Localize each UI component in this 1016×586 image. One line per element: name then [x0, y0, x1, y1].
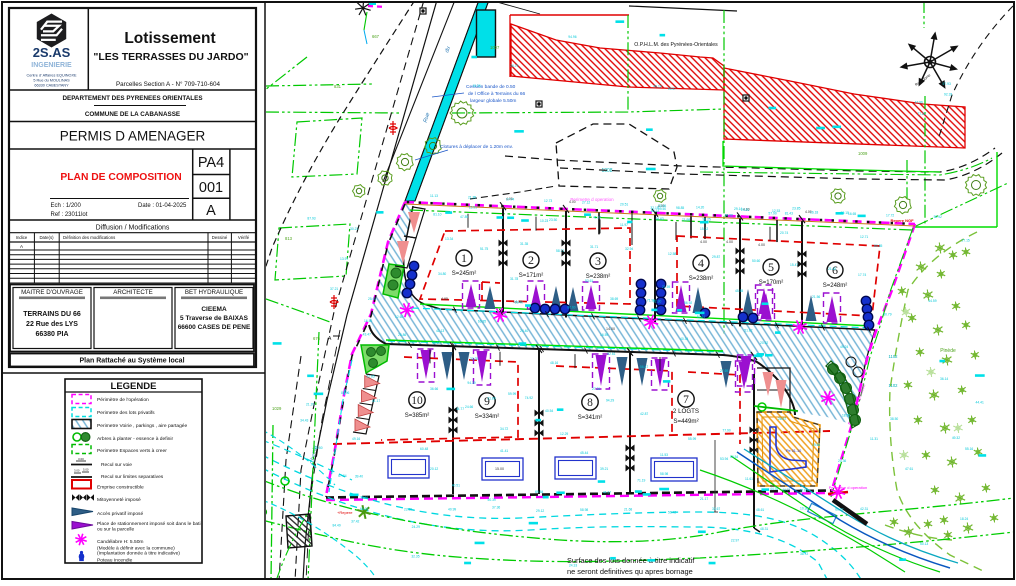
svg-text:44.37: 44.37 — [603, 491, 611, 495]
svg-text:49.16: 49.16 — [352, 437, 360, 441]
svg-text:17.74: 17.74 — [506, 197, 514, 201]
svg-text:Surface des lots donnée à titr: Surface des lots donnée à titre indicati… — [567, 556, 695, 565]
svg-text:39.40: 39.40 — [355, 475, 363, 479]
svg-text:60.55: 60.55 — [874, 244, 882, 248]
svg-text:92.61: 92.61 — [607, 352, 615, 356]
svg-text:81.10: 81.10 — [433, 213, 441, 217]
svg-text:3: 3 — [595, 254, 601, 268]
svg-text:36.66: 36.66 — [430, 387, 438, 391]
svg-text:22 Rue des LYS: 22 Rue des LYS — [26, 321, 78, 328]
svg-text:15.50: 15.50 — [314, 446, 322, 450]
svg-text:BET HYDRAULIQUE: BET HYDRAULIQUE — [185, 289, 243, 296]
svg-text:15.12: 15.12 — [700, 227, 708, 231]
svg-text:52.92: 52.92 — [934, 215, 942, 219]
svg-text:86.60: 86.60 — [567, 305, 575, 309]
svg-text:38.69: 38.69 — [610, 297, 618, 301]
svg-text:36.14: 36.14 — [940, 377, 948, 381]
svg-text:5.00: 5.00 — [83, 468, 89, 472]
svg-text:94.96: 94.96 — [568, 35, 576, 39]
svg-text:26.57: 26.57 — [778, 417, 786, 421]
svg-text:24.40: 24.40 — [520, 329, 528, 333]
svg-text:21.89: 21.89 — [487, 397, 495, 401]
svg-text:58.71: 58.71 — [556, 249, 564, 253]
svg-text:30.21: 30.21 — [350, 227, 358, 231]
svg-text:PERMIS D AMENAGER: PERMIS D AMENAGER — [60, 129, 206, 144]
svg-text:40.34: 40.34 — [680, 337, 688, 341]
svg-text:20.12: 20.12 — [430, 467, 438, 471]
svg-text:44.59: 44.59 — [928, 299, 936, 303]
svg-text:60.48: 60.48 — [420, 447, 428, 451]
svg-text:largeur globale 5.50m: largeur globale 5.50m — [470, 98, 516, 104]
svg-text:+Repere: +Repere — [337, 510, 353, 515]
svg-text:Diffusion / Modifications: Diffusion / Modifications — [96, 225, 170, 232]
svg-text:66600 CASES DE PENE: 66600 CASES DE PENE — [178, 324, 251, 331]
svg-text:41.37: 41.37 — [593, 215, 601, 219]
svg-text:66.85: 66.85 — [478, 319, 486, 323]
svg-text:37.42: 37.42 — [351, 520, 359, 524]
svg-text:24.66: 24.66 — [465, 405, 473, 409]
svg-text:16.50: 16.50 — [364, 319, 372, 323]
svg-text:12.73: 12.73 — [544, 199, 552, 203]
svg-text:12.29: 12.29 — [560, 432, 568, 436]
svg-text:40.54: 40.54 — [545, 409, 553, 413]
svg-text:32.25: 32.25 — [470, 357, 478, 361]
svg-text:5 Traverse de BAIXAS: 5 Traverse de BAIXAS — [180, 315, 249, 322]
svg-text:Candélabre H: 5.50m: Candélabre H: 5.50m — [97, 539, 144, 545]
svg-text:82.84: 82.84 — [697, 315, 705, 319]
svg-text:25.86: 25.86 — [398, 333, 406, 337]
svg-text:52.65: 52.65 — [366, 375, 374, 379]
svg-text:TERRAINS DU 66: TERRAINS DU 66 — [23, 311, 81, 318]
svg-text:51.75: 51.75 — [480, 247, 488, 251]
svg-text:27.15: 27.15 — [962, 238, 970, 242]
svg-text:94.29: 94.29 — [606, 399, 614, 403]
svg-text:13.34: 13.34 — [445, 237, 453, 241]
svg-text:45.55: 45.55 — [735, 289, 743, 293]
svg-text:21.62: 21.62 — [828, 267, 836, 271]
svg-text:26.79: 26.79 — [510, 64, 518, 68]
svg-text:O.P.H.L.M. des Pyrénées-Orient: O.P.H.L.M. des Pyrénées-Orientales — [634, 42, 718, 48]
svg-text:45.19: 45.19 — [653, 85, 661, 89]
svg-text:14.00: 14.00 — [606, 327, 615, 331]
svg-text:56.47: 56.47 — [640, 365, 648, 369]
svg-text:ARCHITECTE: ARCHITECTE — [113, 289, 153, 296]
svg-text:20.74: 20.74 — [780, 231, 788, 235]
svg-text:74.92: 74.92 — [525, 396, 533, 400]
svg-text:94.39: 94.39 — [467, 381, 475, 385]
svg-text:12.71: 12.71 — [860, 235, 868, 239]
svg-text:"LES TERRASSES DU JARDO": "LES TERRASSES DU JARDO" — [93, 51, 248, 63]
svg-text:53.94: 53.94 — [720, 457, 728, 461]
svg-text:3.00: 3.00 — [78, 457, 84, 461]
svg-text:Indice: Indice — [16, 235, 28, 240]
svg-text:21.17: 21.17 — [700, 497, 708, 501]
svg-text:67.84: 67.84 — [338, 474, 346, 478]
svg-text:35.28: 35.28 — [360, 496, 368, 500]
svg-text:10.36: 10.36 — [800, 506, 808, 510]
svg-text:21.56: 21.56 — [812, 295, 820, 299]
svg-text:Emprise constructible: Emprise constructible — [97, 484, 144, 490]
svg-text:23.50: 23.50 — [549, 218, 557, 222]
svg-text:Centre d' Affaires EQUINOXE: Centre d' Affaires EQUINOXE — [26, 74, 77, 78]
svg-text:Ech : 1/200: Ech : 1/200 — [51, 203, 82, 209]
svg-text:48.16: 48.16 — [550, 361, 558, 365]
svg-text:Poteau Incendie: Poteau Incendie — [97, 557, 133, 563]
svg-text:20.52: 20.52 — [760, 341, 768, 345]
svg-text:11.53: 11.53 — [660, 453, 668, 457]
svg-text:1102: 1102 — [888, 383, 898, 388]
svg-text:CIEEMA: CIEEMA — [201, 306, 227, 313]
svg-text:87.93: 87.93 — [307, 217, 315, 221]
svg-text:Définition des modifications: Définition des modifications — [63, 235, 115, 240]
svg-text:47.89: 47.89 — [460, 215, 468, 219]
svg-text:Ref : 23011lot: Ref : 23011lot — [51, 212, 88, 218]
svg-text:Accès privatif imposé: Accès privatif imposé — [97, 511, 143, 517]
svg-text:15.47: 15.47 — [790, 263, 798, 267]
svg-text:42.31: 42.31 — [860, 507, 868, 511]
svg-text:66380 PIA: 66380 PIA — [35, 331, 68, 338]
svg-text:25.61: 25.61 — [368, 297, 376, 301]
svg-text:43.47: 43.47 — [363, 332, 371, 336]
svg-text:50.13: 50.13 — [920, 542, 928, 546]
svg-text:21.68: 21.68 — [624, 507, 632, 511]
svg-text:21.20: 21.20 — [306, 402, 314, 406]
svg-text:27.31: 27.31 — [592, 387, 600, 391]
svg-text:29.87: 29.87 — [712, 255, 720, 259]
svg-text:1029: 1029 — [272, 406, 282, 411]
svg-text:11.31: 11.31 — [870, 437, 878, 441]
svg-text:4.00: 4.00 — [758, 243, 765, 247]
svg-text:38.72: 38.72 — [800, 552, 808, 556]
svg-text:2S.AS: 2S.AS — [33, 45, 71, 60]
svg-text:21.89: 21.89 — [468, 196, 476, 200]
svg-text:98.25: 98.25 — [703, 217, 711, 221]
svg-text:40.51: 40.51 — [452, 484, 460, 488]
svg-text:64.38: 64.38 — [725, 213, 733, 217]
svg-text:23.81: 23.81 — [741, 208, 749, 212]
svg-text:13.97: 13.97 — [340, 257, 348, 261]
svg-text:Pinède: Pinède — [940, 348, 956, 354]
svg-text:16.65: 16.65 — [848, 212, 856, 216]
svg-text:A: A — [20, 244, 23, 249]
svg-text:PA4: PA4 — [198, 155, 224, 171]
svg-text:3.00: 3.00 — [74, 469, 80, 473]
svg-text:28.63: 28.63 — [800, 488, 808, 492]
svg-text:INGENIERIE: INGENIERIE — [31, 62, 72, 69]
svg-text:50.39: 50.39 — [488, 498, 496, 502]
svg-text:8: 8 — [587, 397, 593, 409]
svg-text:831: 831 — [334, 84, 342, 89]
svg-text:DEPARTEMENT DES PYRENEES ORIEN: DEPARTEMENT DES PYRENEES ORIENTALES — [62, 95, 202, 102]
svg-text:45.44: 45.44 — [580, 451, 588, 455]
svg-text:53.61: 53.61 — [585, 279, 593, 283]
svg-text:48.31: 48.31 — [760, 527, 768, 531]
svg-text:24.29: 24.29 — [412, 525, 420, 529]
svg-text:34.43: 34.43 — [300, 418, 308, 422]
svg-text:Vérifé: Vérifé — [238, 235, 250, 240]
svg-text:22.30: 22.30 — [404, 507, 412, 511]
svg-text:1: 1 — [461, 251, 467, 265]
svg-text:19.40: 19.40 — [515, 300, 523, 304]
svg-text:4.95: 4.95 — [441, 297, 448, 301]
svg-text:21.59: 21.59 — [662, 285, 670, 289]
svg-text:51.82: 51.82 — [744, 329, 752, 333]
svg-text:5: 5 — [768, 260, 774, 274]
svg-text:99.57: 99.57 — [668, 87, 676, 91]
svg-text:4: 4 — [698, 256, 704, 270]
svg-text:60.15: 60.15 — [360, 507, 368, 511]
svg-text:56.92: 56.92 — [684, 301, 692, 305]
svg-text:1008: 1008 — [601, 168, 612, 174]
svg-text:12.60: 12.60 — [395, 315, 403, 319]
svg-text:29.14: 29.14 — [734, 207, 742, 211]
svg-text:58.98: 58.98 — [580, 508, 588, 512]
svg-text:50.54: 50.54 — [730, 455, 738, 459]
svg-text:4.00: 4.00 — [700, 240, 707, 244]
svg-text:001: 001 — [199, 180, 223, 196]
svg-text:16.18: 16.18 — [810, 210, 818, 214]
svg-text:1007: 1007 — [490, 45, 500, 50]
svg-text:10.23: 10.23 — [540, 219, 548, 223]
svg-text:S=449m²: S=449m² — [673, 418, 698, 425]
svg-text:18.55: 18.55 — [842, 413, 850, 417]
svg-text:667: 667 — [372, 34, 380, 39]
svg-text:37.36: 37.36 — [492, 505, 500, 509]
svg-text:84.49: 84.49 — [332, 523, 340, 527]
svg-text:S=171m²: S=171m² — [519, 273, 544, 279]
svg-text:Plan Rattaché au Système local: Plan Rattaché au Système local — [79, 358, 184, 365]
svg-text:34.72: 34.72 — [500, 427, 508, 431]
svg-text:Date : 01-04-2025: Date : 01-04-2025 — [138, 203, 187, 209]
svg-text:15.00: 15.00 — [495, 467, 504, 471]
svg-text:Mitoyenneté imposé: Mitoyenneté imposé — [97, 497, 141, 503]
svg-text:ne seront definitives qu apres: ne seront definitives qu apres bornage — [567, 567, 693, 576]
svg-text:18.24: 18.24 — [960, 517, 968, 521]
svg-text:44.34: 44.34 — [770, 487, 778, 491]
svg-text:Perimetre Voirie , parkings ,: Perimetre Voirie , parkings , aire parta… — [97, 423, 188, 429]
svg-text:80.79: 80.79 — [883, 312, 891, 316]
svg-text:48.61: 48.61 — [756, 508, 764, 512]
svg-text:12.58: 12.58 — [668, 252, 676, 256]
svg-text:1009: 1009 — [858, 151, 868, 156]
svg-text:COMMUNE DE LA CABANASSE: COMMUNE DE LA CABANASSE — [85, 111, 180, 118]
svg-text:29.12: 29.12 — [536, 509, 544, 513]
svg-text:19.68: 19.68 — [812, 443, 820, 447]
svg-text:S=385m²: S=385m² — [405, 413, 430, 419]
svg-text:56.42: 56.42 — [668, 510, 676, 514]
svg-text:47.96: 47.96 — [915, 100, 923, 104]
svg-text:69.84: 69.84 — [535, 490, 543, 494]
svg-text:1102: 1102 — [888, 354, 898, 359]
svg-text:55.16: 55.16 — [965, 447, 973, 451]
svg-text:71.99: 71.99 — [647, 299, 655, 303]
svg-text:89.96: 89.96 — [341, 391, 349, 395]
svg-text:Clotures à déplacer de 1.20m e: Clotures à déplacer de 1.20m env. — [440, 144, 513, 150]
svg-text:57.93: 57.93 — [943, 82, 951, 86]
svg-text:92.33: 92.33 — [944, 93, 952, 97]
svg-text:5 Rue du MOULINAS: 5 Rue du MOULINAS — [33, 79, 70, 83]
svg-text:98.63: 98.63 — [656, 217, 664, 221]
svg-text:23.85: 23.85 — [792, 206, 800, 210]
svg-text:32.94: 32.94 — [625, 247, 633, 251]
svg-text:Recul sur limites separatives: Recul sur limites separatives — [101, 474, 164, 480]
svg-text:39.21: 39.21 — [600, 467, 608, 471]
svg-text:77.90: 77.90 — [722, 428, 730, 432]
svg-text:50.60: 50.60 — [752, 259, 760, 263]
svg-text:20.54: 20.54 — [658, 204, 666, 208]
svg-text:Perimetre d operation: Perimetre d operation — [570, 197, 614, 202]
svg-text:47.61: 47.61 — [905, 467, 913, 471]
svg-text:S=341m²: S=341m² — [578, 415, 603, 421]
svg-text:55.99: 55.99 — [688, 437, 696, 441]
svg-text:11.97: 11.97 — [620, 223, 628, 227]
svg-text:32.35: 32.35 — [411, 555, 419, 559]
svg-text:41.13: 41.13 — [436, 329, 444, 333]
svg-text:S=334m²: S=334m² — [475, 414, 500, 420]
svg-text:Perimetre Espaces verts à cre: Perimetre Espaces verts à creer — [97, 448, 167, 454]
svg-text:27.69: 27.69 — [720, 369, 728, 373]
svg-text:31.35: 31.35 — [520, 242, 528, 246]
svg-text:Parcelles Section A - N° 709-7: Parcelles Section A - N° 709-710-604 — [116, 80, 221, 88]
svg-text:81.43: 81.43 — [785, 212, 793, 216]
svg-text:11.61: 11.61 — [745, 477, 753, 481]
svg-text:38.50: 38.50 — [890, 417, 898, 421]
svg-text:Pe 01.10: Pe 01.10 — [786, 449, 801, 453]
svg-text:41.41: 41.41 — [500, 449, 508, 453]
svg-text:82.22: 82.22 — [651, 209, 659, 213]
svg-text:2: 2 — [528, 253, 534, 267]
svg-text:Périmètre de l'opération: Périmètre de l'opération — [97, 397, 149, 403]
svg-text:4.00: 4.00 — [569, 200, 576, 204]
svg-text:20.36: 20.36 — [838, 459, 846, 463]
svg-text:7: 7 — [683, 394, 689, 406]
svg-text:19.36: 19.36 — [472, 84, 480, 88]
svg-text:Arbres à planter - essence à d: Arbres à planter - essence à definir — [97, 436, 173, 442]
svg-text:Date(s): Date(s) — [39, 235, 54, 240]
svg-text:58.98: 58.98 — [660, 472, 668, 476]
svg-text:16.59: 16.59 — [600, 333, 608, 337]
svg-text:813: 813 — [285, 236, 293, 241]
svg-text:Lotissement: Lotissement — [124, 30, 215, 47]
svg-text:S=248m²: S=248m² — [823, 283, 848, 289]
svg-text:40.99: 40.99 — [448, 507, 456, 511]
svg-text:20.51: 20.51 — [620, 202, 628, 206]
svg-text:S=245m²: S=245m² — [452, 271, 477, 277]
svg-text:22.97: 22.97 — [731, 538, 739, 542]
svg-text:33.67: 33.67 — [712, 507, 720, 511]
svg-text:MAITRE D'OUVRAGE: MAITRE D'OUVRAGE — [21, 289, 83, 296]
svg-text:34.80: 34.80 — [438, 272, 446, 276]
svg-text:59.99: 59.99 — [508, 392, 516, 396]
svg-text:71.19: 71.19 — [637, 478, 645, 482]
svg-text:Repere NGF: Repere NGF — [890, 218, 914, 223]
svg-text:34.77: 34.77 — [456, 407, 464, 411]
svg-text:27.12: 27.12 — [582, 201, 590, 205]
svg-text:PLAN DE COMPOSITION: PLAN DE COMPOSITION — [60, 172, 181, 183]
svg-text:de l Office à Terrains du 66: de l Office à Terrains du 66 — [468, 91, 525, 97]
svg-text:4.00: 4.00 — [726, 240, 733, 244]
svg-text:Perimetre des lots privatifs: Perimetre des lots privatifs — [97, 410, 155, 416]
svg-text:Place de stationnement imposé: Place de stationnement imposé soit dans … — [97, 521, 201, 527]
svg-text:12.53: 12.53 — [772, 209, 780, 213]
svg-text:44.71: 44.71 — [782, 488, 790, 492]
svg-text:2 LOGTS: 2 LOGTS — [673, 408, 699, 415]
svg-text:676: 676 — [313, 336, 321, 341]
svg-text:49.32: 49.32 — [952, 436, 960, 440]
svg-text:51.17: 51.17 — [372, 399, 380, 403]
svg-text:37.21: 37.21 — [330, 287, 338, 291]
svg-text:77.24: 77.24 — [917, 112, 925, 116]
svg-text:13.51: 13.51 — [469, 205, 477, 209]
svg-text:LEGENDE: LEGENDE — [111, 381, 157, 392]
svg-text:11.13: 11.13 — [430, 194, 438, 198]
svg-text:S=238m²: S=238m² — [689, 276, 714, 282]
svg-text:(Implantation donnée à titre i: (Implantation donnée à titre indicative) — [97, 550, 180, 556]
svg-text:17.74: 17.74 — [858, 273, 866, 277]
svg-text:A: A — [206, 203, 216, 219]
svg-text:71.99: 71.99 — [682, 218, 690, 222]
svg-text:10: 10 — [411, 395, 423, 407]
svg-text:66.62: 66.62 — [835, 507, 843, 511]
svg-text:99.60: 99.60 — [432, 341, 440, 345]
svg-text:49.24: 49.24 — [840, 345, 848, 349]
svg-text:31.71: 31.71 — [590, 245, 598, 249]
svg-text:14.20: 14.20 — [696, 206, 704, 210]
svg-text:Dessiné: Dessiné — [212, 235, 228, 240]
svg-text:31.78: 31.78 — [510, 277, 518, 281]
svg-text:66330 CABESTANY: 66330 CABESTANY — [34, 84, 69, 88]
svg-text:24.33: 24.33 — [569, 563, 577, 567]
svg-text:ou sur la parcelle: ou sur la parcelle — [97, 526, 135, 532]
svg-text:44.41: 44.41 — [976, 400, 984, 404]
svg-text:42.87: 42.87 — [640, 412, 648, 416]
svg-text:98.85: 98.85 — [676, 206, 684, 210]
svg-text:17.72: 17.72 — [886, 214, 894, 218]
svg-text:Recul sur voie: Recul sur voie — [101, 462, 132, 468]
